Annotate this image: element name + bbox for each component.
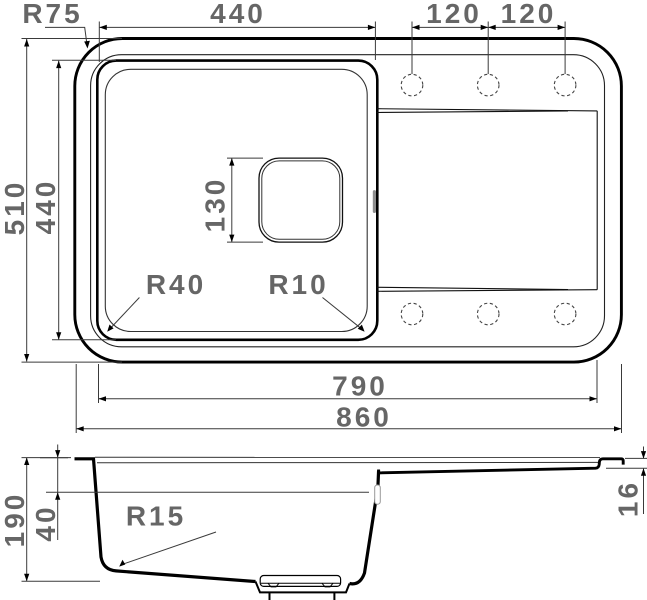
svg-text:440: 440 — [210, 0, 266, 29]
svg-text:860: 860 — [336, 402, 392, 433]
svg-text:R15: R15 — [126, 501, 186, 532]
svg-text:R10: R10 — [268, 269, 328, 300]
svg-text:130: 130 — [200, 177, 231, 233]
svg-text:510: 510 — [0, 180, 30, 236]
svg-text:790: 790 — [332, 371, 388, 402]
svg-text:440: 440 — [30, 179, 61, 235]
svg-text:R40: R40 — [146, 269, 206, 300]
svg-text:16: 16 — [613, 480, 644, 517]
svg-text:40: 40 — [30, 504, 61, 541]
svg-text:120: 120 — [501, 0, 557, 29]
svg-text:R75: R75 — [22, 0, 82, 29]
svg-text:190: 190 — [0, 492, 30, 548]
svg-text:120: 120 — [426, 0, 482, 29]
